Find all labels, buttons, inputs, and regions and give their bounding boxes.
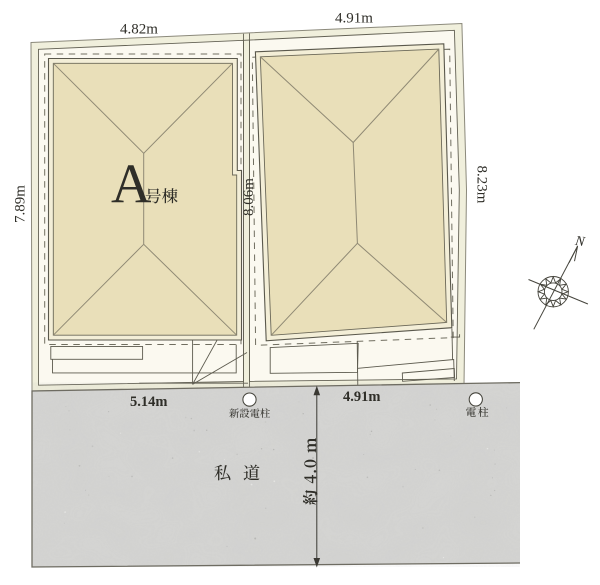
svg-text:A: A xyxy=(111,154,152,216)
svg-text:4.91m: 4.91m xyxy=(335,11,373,27)
svg-text:7.89m: 7.89m xyxy=(13,185,29,223)
svg-text:8.23m: 8.23m xyxy=(474,166,490,204)
svg-text:8.06m: 8.06m xyxy=(241,178,257,216)
svg-text:5.14m: 5.14m xyxy=(130,394,167,410)
svg-text:4.91m: 4.91m xyxy=(343,389,380,405)
svg-text:4.82m: 4.82m xyxy=(120,22,158,38)
